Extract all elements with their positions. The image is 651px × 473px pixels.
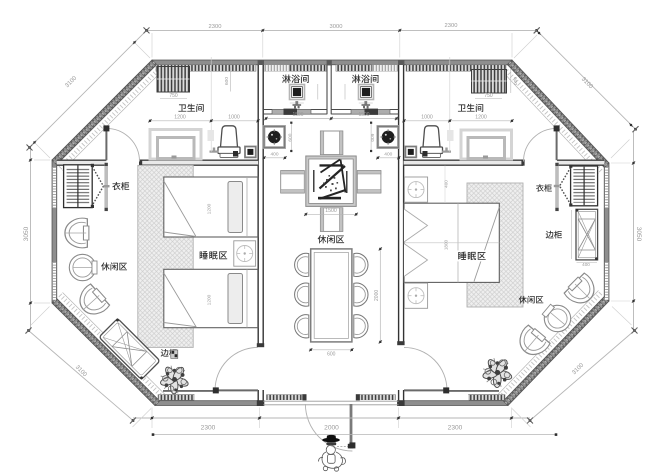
- svg-text:1200: 1200: [207, 203, 213, 214]
- svg-text:2000: 2000: [374, 290, 380, 301]
- svg-text:750: 750: [484, 93, 493, 99]
- svg-text:1500: 1500: [325, 208, 337, 214]
- svg-text:1800: 1800: [444, 239, 449, 250]
- svg-text:1200: 1200: [475, 115, 487, 121]
- svg-text:2300: 2300: [201, 425, 216, 432]
- svg-text:3050: 3050: [23, 226, 30, 241]
- svg-text:600: 600: [327, 351, 336, 357]
- svg-text:600: 600: [224, 77, 230, 85]
- svg-text:750: 750: [169, 93, 178, 99]
- svg-text:1500: 1500: [358, 112, 369, 118]
- svg-text:600: 600: [287, 133, 293, 141]
- svg-text:2300: 2300: [209, 24, 222, 30]
- svg-text:2300: 2300: [448, 425, 463, 432]
- svg-text:600: 600: [512, 77, 518, 85]
- svg-text:1000: 1000: [228, 115, 240, 121]
- svg-text:400: 400: [384, 151, 392, 157]
- svg-text:600: 600: [369, 134, 375, 142]
- svg-text:1200: 1200: [174, 115, 186, 121]
- svg-text:1200: 1200: [207, 294, 213, 305]
- svg-text:1500: 1500: [292, 112, 303, 118]
- svg-text:400: 400: [444, 180, 449, 188]
- svg-text:3000: 3000: [330, 24, 343, 30]
- svg-text:1000: 1000: [421, 115, 433, 121]
- svg-text:2300: 2300: [445, 23, 458, 29]
- svg-text:3050: 3050: [635, 227, 642, 242]
- svg-text:400: 400: [270, 151, 278, 157]
- svg-text:2000: 2000: [324, 425, 339, 432]
